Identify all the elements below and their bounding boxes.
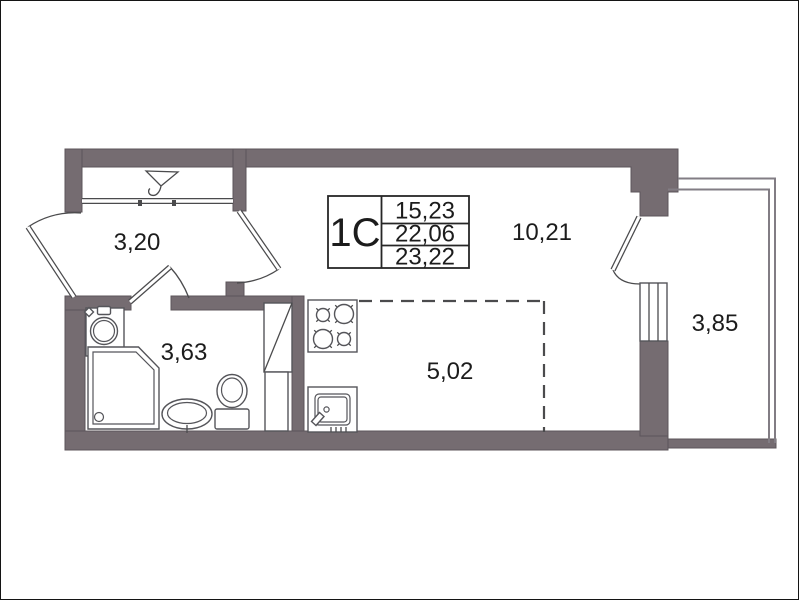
balcony-area-label: 3,85 [692, 310, 739, 337]
stove-burner [314, 330, 333, 349]
window-frame [640, 283, 667, 341]
corner-sink-tap [98, 307, 111, 315]
kitchen-divider-wall [292, 296, 304, 436]
closet-right-wall-stub [233, 149, 246, 211]
bathroom-left-wall [65, 296, 85, 450]
hall-room-door [237, 211, 279, 283]
floor-plan-canvas: 1С 15,23 22,06 23,22 3,20 3,63 5,02 10,2… [0, 0, 799, 600]
unit-info-table: 1С 15,23 22,06 23,22 [328, 196, 469, 271]
stove-burner [335, 305, 354, 324]
stove-burner [316, 308, 329, 321]
balcony-door [613, 217, 640, 284]
right-wall-lower [640, 341, 668, 436]
balcony-door-arc [613, 270, 640, 284]
wardrobe-track-tick [138, 200, 142, 206]
corner-sink-bowl [91, 318, 118, 345]
toilet-tank [215, 409, 249, 429]
hallway-area-label: 3,20 [114, 229, 161, 256]
bottom-wall [65, 431, 668, 450]
floor-plan-svg: 1С 15,23 22,06 23,22 3,20 3,63 5,02 10,2… [1, 1, 799, 600]
living-room-area-label: 10,21 [512, 219, 572, 246]
hanger-symbol-icon [146, 171, 178, 195]
kitchen-zone-area-label: 5,02 [427, 358, 474, 385]
bathroom-door-arc [170, 267, 189, 298]
closet-left-wall-stub [65, 149, 82, 212]
entrance-door [28, 213, 81, 297]
unit-type-label: 1С [329, 211, 380, 255]
entrance-door-arc [28, 213, 81, 227]
bathroom-fixtures [85, 303, 293, 433]
shower-tray [88, 347, 159, 429]
window [640, 283, 667, 341]
hall-room-door-arc [237, 269, 279, 283]
balcony-bottom-band [668, 439, 776, 448]
area-value-total: 23,22 [395, 244, 455, 271]
vent-shaft-lower [265, 372, 288, 431]
wardrobe-niche [82, 171, 233, 206]
wardrobe-track-tick [172, 200, 176, 206]
washbasin [162, 399, 212, 429]
stove-burner [337, 332, 350, 345]
bathroom-area-label: 3,63 [161, 339, 208, 366]
kitchen-fixtures [308, 300, 357, 432]
